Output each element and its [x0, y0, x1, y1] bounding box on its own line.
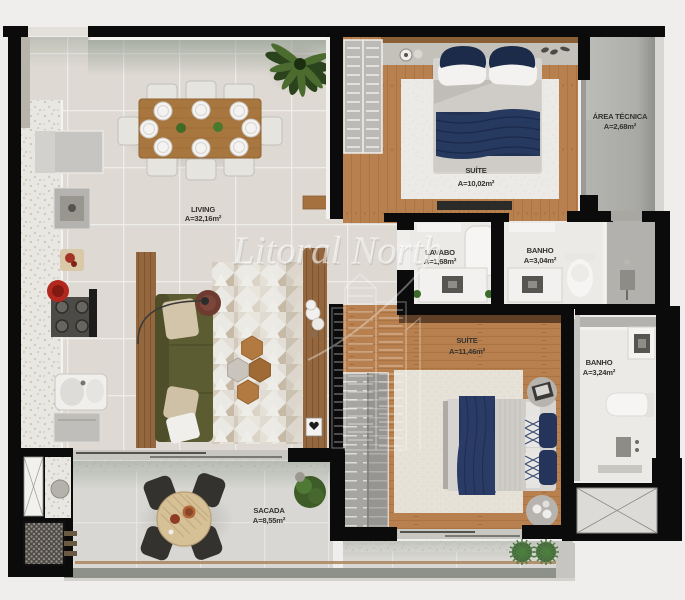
svg-text:LIVING: LIVING [191, 205, 215, 214]
svg-text:A=10,02m²: A=10,02m² [458, 179, 495, 188]
svg-text:A=3,24m²: A=3,24m² [583, 368, 616, 377]
svg-text:A=32,16m²: A=32,16m² [185, 214, 222, 223]
svg-text:SUÍTE: SUÍTE [465, 166, 486, 175]
svg-text:A=11,46m²: A=11,46m² [449, 347, 486, 356]
svg-text:SACADA: SACADA [253, 506, 285, 515]
svg-text:SUÍTE: SUÍTE [456, 336, 477, 345]
svg-text:BANHO: BANHO [527, 246, 554, 255]
svg-text:A=3,04m²: A=3,04m² [524, 256, 557, 265]
svg-text:ÁREA TÉCNICA: ÁREA TÉCNICA [593, 112, 648, 121]
svg-text:A=2,68m²: A=2,68m² [604, 122, 637, 131]
svg-text:BANHO: BANHO [586, 358, 613, 367]
svg-text:Litoral North: Litoral North [232, 229, 442, 272]
svg-text:A=8,55m²: A=8,55m² [253, 516, 286, 525]
